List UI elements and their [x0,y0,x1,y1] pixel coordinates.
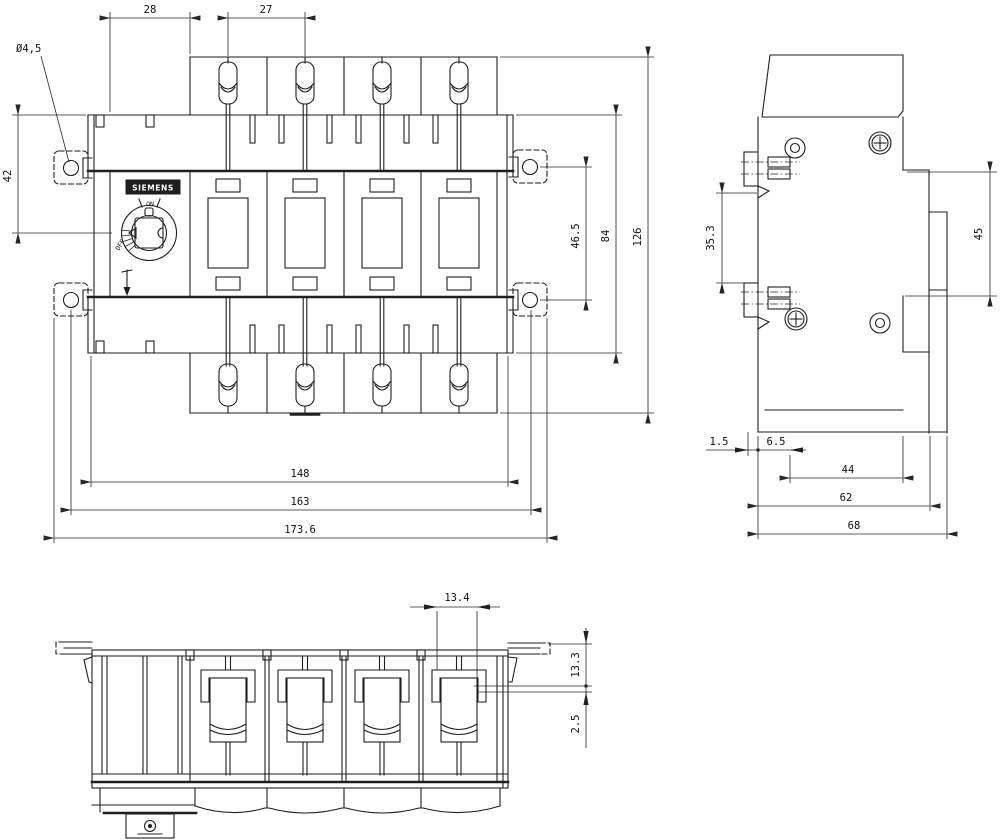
dim-label-84: 84 [600,230,612,243]
rotary-switch: ON OFF [114,199,177,261]
technical-drawing: SIEMENS ON OFF [0,0,1000,840]
phillips-screw-icon [785,308,807,330]
dim-body-height: 84 [516,115,622,353]
dim-label-62: 62 [840,492,853,504]
terminal-hole-icon [785,138,805,158]
cage-clamp-icon [355,656,409,775]
screw-terminal-icon [296,297,314,413]
switch-on-label: ON [146,200,154,208]
front-top-terminal-block [190,57,497,171]
dim-inner-width: 148 [91,356,508,487]
wire-slot [250,325,284,353]
dim-label-13-3: 13.3 [570,652,582,677]
bottom-body-outline [92,650,508,788]
dim-label-35-3: 35.3 [705,225,717,250]
ground-symbol-icon [122,270,132,296]
dim-label-126: 126 [632,228,644,247]
side-view: 35.3 45 1.5 6.5 44 62 [705,55,997,539]
pole-module [208,179,248,290]
dim-top-to-center: 42 [2,115,112,233]
dim-label-6-5: 6.5 [767,436,786,448]
drawing-page: SIEMENS ON OFF [0,0,1000,840]
side-upper-terminal [741,132,891,186]
dim-label-hole: Ø4,5 [16,43,41,55]
dim-label-163: 163 [291,496,310,508]
dim-terminal-gap: 35.3 [705,193,757,283]
bottom-view: 13.4 13.3 2.5 [56,592,592,838]
screw-terminal-icon [373,57,391,171]
dim-label-44: 44 [842,464,855,476]
front-bottom-terminal-block [190,297,497,415]
dim-label-45: 45 [973,228,985,241]
cage-clamp-icon [278,656,332,775]
screw-terminal-icon [219,297,237,413]
dim-label-46-5: 46.5 [570,223,582,248]
phillips-screw-icon [869,132,891,154]
pole-module [285,179,325,290]
dim-din-rail-height: 45 [905,172,997,296]
wire-slot [250,115,284,143]
front-view: SIEMENS ON OFF [2,4,654,543]
din-clip-bracket [126,814,174,838]
side-body-outline [758,55,947,433]
dim-label-2-5: 2.5 [570,715,582,734]
dim-label-68: 68 [848,520,861,532]
dim-label-148: 148 [291,468,310,480]
dim-clamp-depth-offset: 13.3 2.5 [474,628,592,748]
bottom-pole-modules [201,650,503,788]
wire-slot [404,115,438,143]
bottom-left-section [102,650,194,782]
screw-terminal-icon [450,57,468,171]
dim-overall-depth: 68 [758,436,947,539]
brand-label: SIEMENS [132,184,174,193]
pole-module [362,179,402,290]
cage-clamp-icon [432,656,486,775]
bottom-left-tab [56,642,92,683]
front-upper-cover-band [88,115,513,353]
wire-slot [327,115,361,143]
dim-label-28: 28 [144,4,157,16]
switch-off-label: OFF [114,238,127,252]
dim-mounting-hole: Ø4,5 [16,43,69,162]
terminal-hole-icon [870,313,890,333]
screw-terminal-icon [219,57,237,171]
screw-terminal-icon [450,297,468,413]
pole-module [439,179,479,290]
dim-label-27: 27 [260,4,273,16]
screw-terminal-icon [296,57,314,171]
dim-hole-spacing: 46.5 [540,167,592,300]
dim-flange-to-block: 28 [110,4,190,112]
dim-front-depth: 44 [790,436,903,483]
wire-slot [327,325,361,353]
dim-label-173-6: 173.6 [284,524,316,536]
bottom-foot [92,788,500,838]
front-lower-cover-band [88,297,513,353]
siemens-logo-plate: SIEMENS [126,180,180,194]
wire-slot [404,325,438,353]
dim-overall-width: 173.6 [54,318,547,543]
dim-pole-pitch: 27 [228,4,305,56]
dim-rail-and-front-offset: 1.5 6.5 [706,432,806,539]
dim-label-1-5: 1.5 [710,436,729,448]
dim-label-13-4: 13.4 [444,592,469,604]
cage-clamp-icon [201,656,255,775]
dim-label-42: 42 [2,170,14,183]
screw-terminal-icon [373,297,391,413]
bottom-right-tab [508,643,550,682]
